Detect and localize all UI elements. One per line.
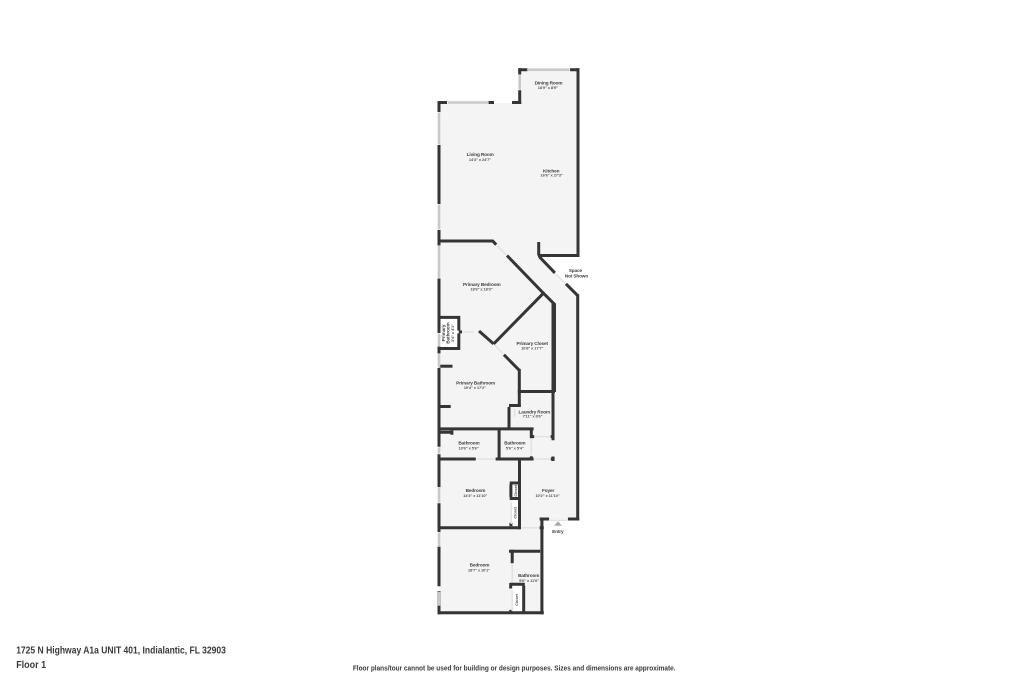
svg-text:14'4" x 11'10": 14'4" x 11'10" [463, 493, 487, 498]
svg-text:5'6" x 5'4": 5'6" x 5'4" [506, 446, 524, 451]
svg-text:16'6" x 27'3": 16'6" x 27'3" [540, 173, 562, 178]
svg-text:Entry: Entry [552, 529, 564, 534]
svg-text:16'8" x 17'7": 16'8" x 17'7" [521, 345, 543, 350]
svg-text:Closet: Closet [513, 484, 518, 496]
svg-text:18'6" x 18'3": 18'6" x 18'3" [470, 287, 492, 292]
svg-text:18'7" x 10'1": 18'7" x 10'1" [468, 568, 490, 573]
svg-text:Closet: Closet [513, 506, 518, 518]
svg-text:1725 N Highway A1a UNIT 401, I: 1725 N Highway A1a UNIT 401, Indialantic… [16, 645, 226, 656]
svg-text:Closet: Closet [514, 593, 519, 605]
svg-text:10'2" x 11'10": 10'2" x 11'10" [535, 493, 559, 498]
svg-text:3'4" x 4'1": 3'4" x 4'1" [450, 324, 455, 342]
svg-text:5'6" x 11'0": 5'6" x 11'0" [519, 578, 539, 583]
svg-text:19'4" x 17'2": 19'4" x 17'2" [464, 385, 486, 390]
svg-text:14'3" x 24'7": 14'3" x 24'7" [469, 157, 491, 162]
svg-text:Not Shown: Not Shown [565, 273, 589, 278]
svg-text:7'11" x 8'6": 7'11" x 8'6" [523, 414, 543, 419]
svg-text:18'9" x 8'9": 18'9" x 8'9" [538, 85, 558, 90]
svg-text:Floor 1: Floor 1 [16, 660, 46, 671]
svg-text:Floor plans/tour cannot be use: Floor plans/tour cannot be used for buil… [353, 666, 676, 673]
svg-text:10'6" x 5'6": 10'6" x 5'6" [459, 446, 479, 451]
svg-text:Space: Space [569, 268, 583, 273]
